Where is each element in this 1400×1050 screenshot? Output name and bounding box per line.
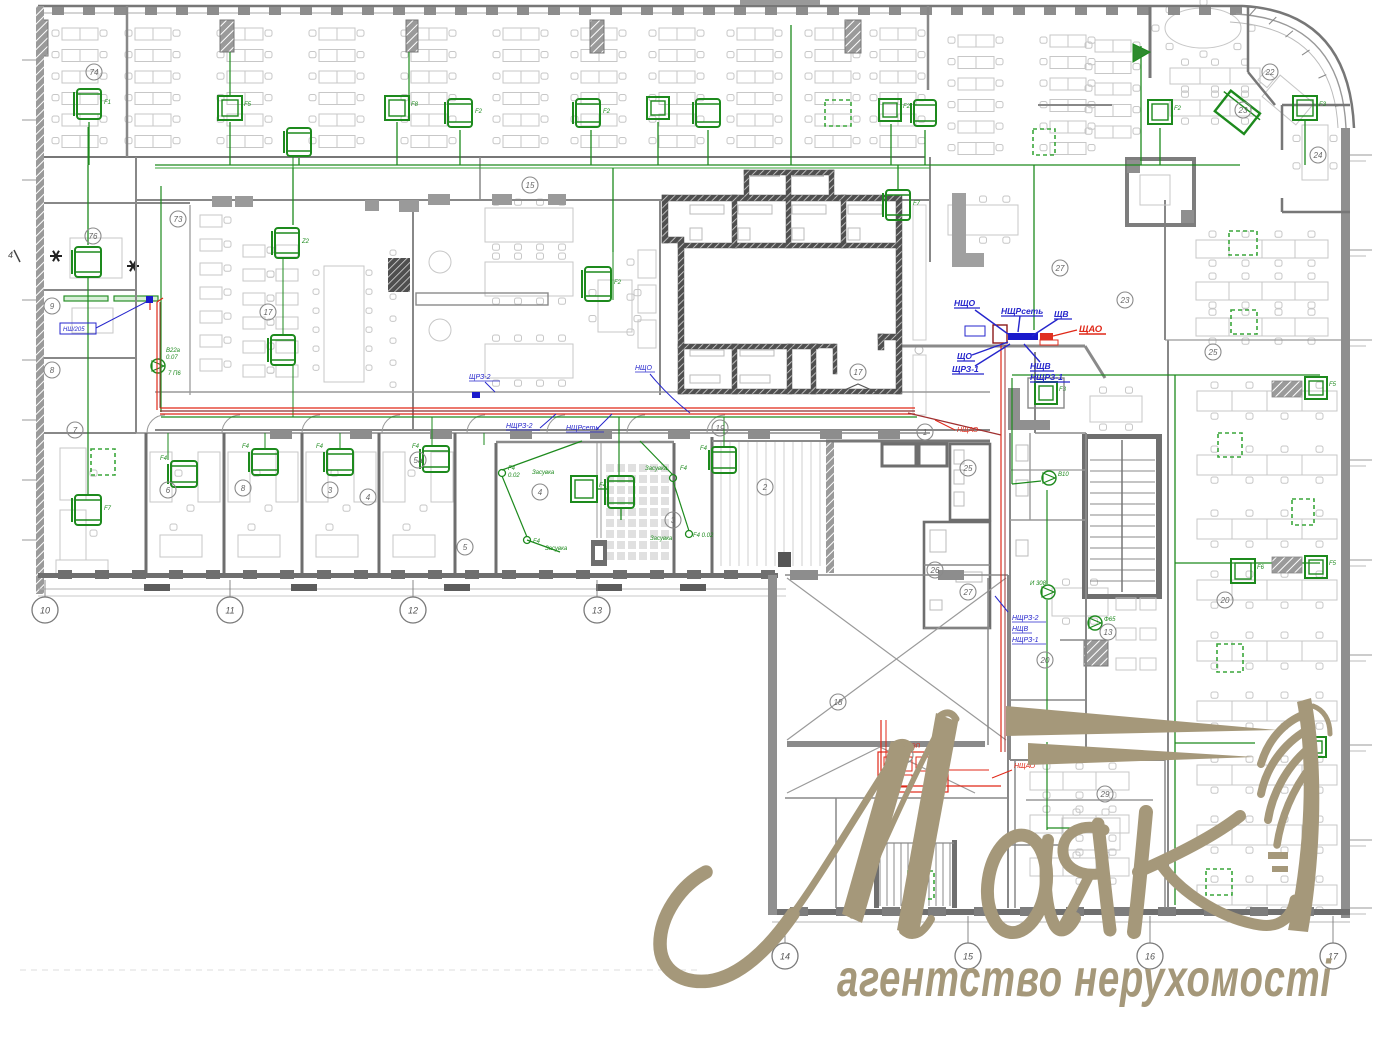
svg-text:F4: F4	[316, 444, 324, 450]
svg-text:10: 10	[40, 606, 50, 616]
svg-text:И 308: И 308	[1030, 581, 1047, 587]
svg-text:18: 18	[834, 698, 843, 707]
svg-text:НЩРЗ-2: НЩРЗ-2	[1012, 615, 1039, 622]
svg-text:F1: F1	[104, 100, 111, 106]
svg-text:F2: F2	[614, 280, 622, 286]
svg-text:F4: F4	[508, 466, 516, 472]
svg-text:8: 8	[50, 366, 55, 375]
svg-text:НЩРЗ-1: НЩРЗ-1	[1030, 372, 1063, 382]
svg-text:9: 9	[50, 302, 55, 311]
svg-text:0.02: 0.02	[508, 473, 520, 479]
svg-text:29: 29	[1100, 790, 1110, 799]
svg-text:3: 3	[671, 516, 676, 525]
svg-text:5a: 5a	[414, 456, 423, 465]
svg-text:ЩРЗ-2: ЩРЗ-2	[469, 374, 491, 381]
svg-text:агентство нерухомості: агентство нерухомості	[837, 949, 1332, 1007]
svg-text:27: 27	[963, 588, 973, 597]
svg-text:17: 17	[264, 308, 273, 317]
svg-text:27: 27	[1055, 264, 1065, 273]
svg-text:НЩВ: НЩВ	[1030, 361, 1051, 371]
svg-text:НЩВ: НЩВ	[1012, 626, 1029, 633]
svg-text:НЩРсеть: НЩРсеть	[566, 425, 599, 432]
svg-text:12: 12	[408, 606, 418, 616]
svg-text:В22а: В22а	[166, 348, 181, 354]
svg-text:F4: F4	[412, 444, 420, 450]
svg-text:24: 24	[1313, 151, 1323, 160]
svg-text:76: 76	[89, 232, 98, 241]
svg-text:6: 6	[166, 486, 171, 495]
svg-text:Засувка: Засувка	[645, 466, 668, 472]
svg-text:B10: B10	[1058, 472, 1069, 478]
svg-text:F8: F8	[411, 102, 419, 108]
svg-text:17: 17	[854, 368, 863, 377]
svg-text:Засувка: Засувка	[532, 470, 555, 476]
svg-text:НЩО: НЩО	[954, 298, 976, 308]
svg-text:1: 1	[923, 428, 927, 437]
svg-text:F3: F3	[1319, 102, 1327, 108]
svg-text:20: 20	[1220, 596, 1230, 605]
svg-text:4: 4	[366, 493, 371, 502]
svg-text:F2: F2	[475, 109, 483, 115]
svg-text:F2: F2	[603, 109, 611, 115]
svg-text:14: 14	[780, 952, 790, 962]
svg-text:НЩАО: НЩАО	[957, 427, 979, 434]
svg-text:13: 13	[592, 606, 602, 616]
svg-text:3: 3	[328, 486, 333, 495]
svg-text:F4: F4	[533, 539, 541, 545]
svg-text:ЩВ: ЩВ	[1054, 309, 1069, 319]
svg-text:F2: F2	[903, 104, 911, 110]
svg-text:25: 25	[1208, 348, 1218, 357]
svg-text:22: 22	[1265, 68, 1275, 77]
svg-text:5: 5	[463, 543, 468, 552]
svg-text:2: 2	[762, 483, 768, 492]
svg-text:0.07: 0.07	[166, 355, 178, 361]
svg-text:F7: F7	[104, 506, 112, 512]
svg-text:7: 7	[73, 426, 78, 435]
svg-text:НШ/205: НШ/205	[63, 327, 85, 333]
svg-text:F5: F5	[244, 102, 252, 108]
svg-text:8: 8	[241, 484, 246, 493]
svg-text:ЩО: ЩО	[957, 351, 972, 361]
svg-text:23: 23	[1120, 296, 1130, 305]
svg-text:НЩРЗ-2: НЩРЗ-2	[506, 423, 533, 430]
svg-text:НЩРсеть: НЩРсеть	[1001, 306, 1043, 316]
svg-text:НЩРЗ-1: НЩРЗ-1	[1012, 637, 1039, 644]
svg-text:19: 19	[716, 424, 725, 433]
svg-text:73: 73	[174, 215, 183, 224]
svg-text:Z2: Z2	[301, 239, 310, 245]
svg-text:7 П6: 7 П6	[168, 371, 181, 377]
svg-text:13: 13	[1104, 628, 1113, 637]
svg-text:25: 25	[963, 464, 973, 473]
svg-text:F7: F7	[913, 201, 921, 207]
svg-text:F3: F3	[1059, 387, 1067, 393]
svg-text:F4 0.02: F4 0.02	[693, 533, 714, 539]
svg-text:F5: F5	[1329, 382, 1337, 388]
svg-text:F2: F2	[1174, 106, 1182, 112]
svg-text:23: 23	[1238, 106, 1248, 115]
svg-text:Ф65: Ф65	[1104, 617, 1116, 623]
svg-text:F4: F4	[680, 466, 688, 472]
svg-text:4: 4	[538, 488, 543, 497]
svg-text:15: 15	[526, 181, 535, 190]
svg-text:F5: F5	[1329, 561, 1337, 567]
svg-text:F4: F4	[700, 446, 708, 452]
svg-text:НЩО: НЩО	[635, 365, 653, 372]
svg-text:11: 11	[225, 606, 234, 616]
svg-text:20: 20	[1040, 656, 1050, 665]
svg-text:Засувка: Засувка	[650, 536, 673, 542]
svg-text:F4: F4	[242, 444, 250, 450]
svg-text:4: 4	[8, 250, 13, 260]
svg-text:F6: F6	[1257, 565, 1265, 571]
svg-text:26: 26	[930, 566, 940, 575]
svg-text:F4: F4	[160, 456, 168, 462]
svg-text:Засувка: Засувка	[545, 546, 568, 552]
svg-text:74: 74	[90, 68, 99, 77]
